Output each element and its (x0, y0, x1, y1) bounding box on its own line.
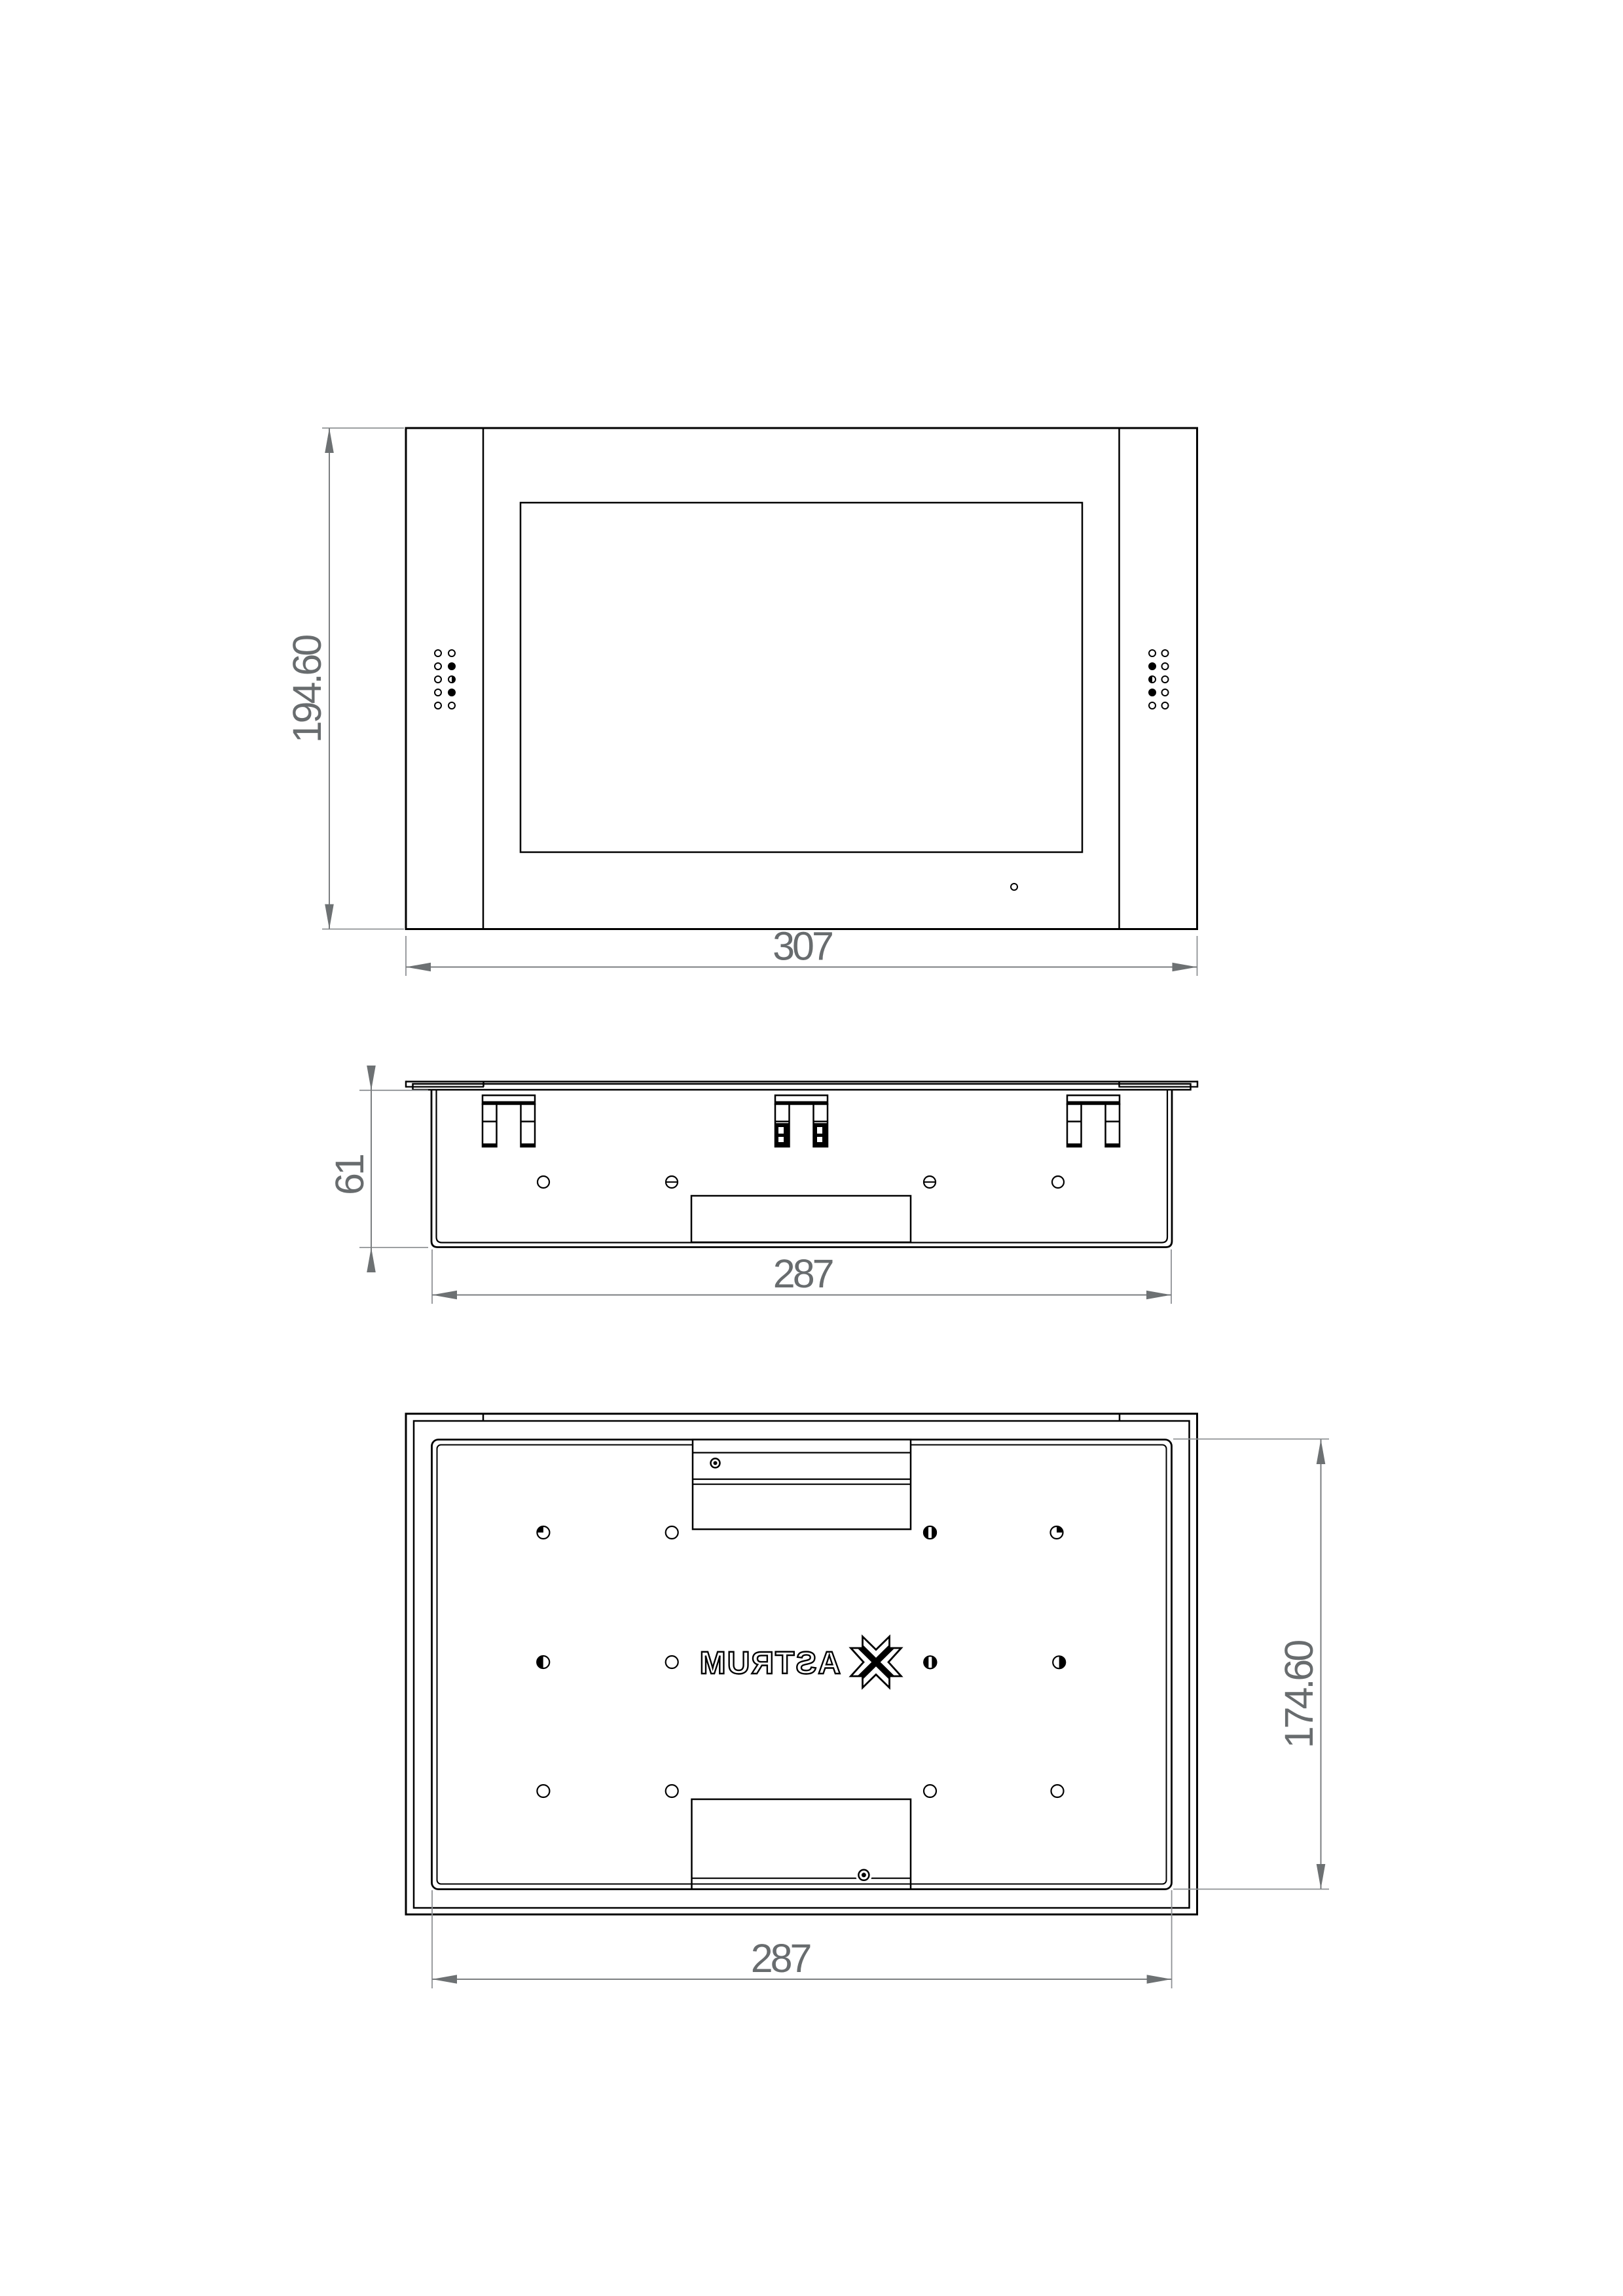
svg-text:194.60: 194.60 (285, 636, 329, 744)
svg-text:174.60: 174.60 (1277, 1641, 1321, 1749)
svg-text:307: 307 (773, 924, 832, 969)
svg-text:287: 287 (751, 1936, 811, 1981)
svg-text:ASTRUM: ASTRUM (699, 1646, 841, 1681)
svg-text:287: 287 (773, 1251, 833, 1296)
svg-text:61: 61 (327, 1155, 372, 1195)
